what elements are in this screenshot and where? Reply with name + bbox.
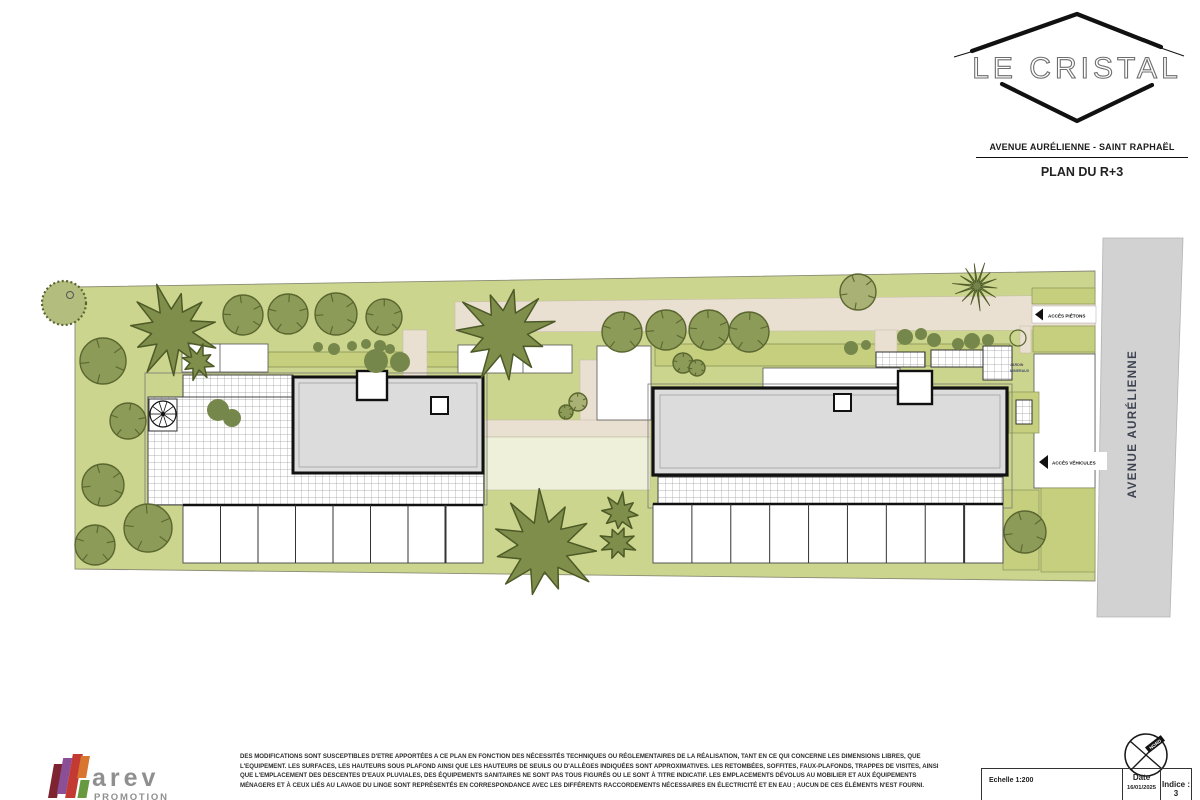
shrub: [861, 340, 871, 350]
tree: [729, 312, 769, 352]
tree: [366, 299, 402, 335]
disclaimer-line: DES MODIFICATIONS SONT SUSCEPTIBLES D'ET…: [240, 752, 938, 762]
tree: [124, 504, 172, 552]
balcony-row: [653, 504, 1003, 563]
roof-patio: [357, 371, 387, 400]
disclaimer: DES MODIFICATIONS SONT SUSCEPTIBLES D'ET…: [240, 752, 938, 791]
shrub: [361, 339, 371, 349]
tree: [315, 293, 357, 335]
roof-slab: [653, 388, 1007, 475]
shrub: [223, 409, 241, 427]
balcony-row: [183, 505, 483, 563]
path-between-buildings: [485, 420, 650, 437]
title-block: Echelle 1:200 Date 16/01/2025 Indice : 3: [981, 768, 1192, 800]
date-label: Date: [1123, 773, 1160, 782]
tree: [82, 464, 124, 506]
tree: [80, 338, 126, 384]
tree: [223, 295, 263, 335]
shrub: [313, 342, 323, 352]
access-vehicle-label: ACCÈS VÉHICULES: [1052, 459, 1096, 466]
shrub: [364, 349, 388, 373]
street-label: AVENUE AURÉLIENNE: [1126, 350, 1139, 498]
shrub: [964, 333, 980, 349]
roof-skylight: [834, 394, 851, 411]
index-cell: Indice : 3: [1161, 769, 1191, 800]
roof-skylight: [431, 397, 448, 414]
shrub: [915, 328, 927, 340]
roof-patio: [898, 371, 932, 404]
tree: [268, 294, 308, 334]
arev-logo-text: arev: [92, 764, 159, 793]
path-connector-3: [875, 330, 897, 352]
plan-sheet: LE CRISTAL AVENUE AURÉLIENNE - SAINT RAP…: [0, 0, 1200, 800]
road-avenue-aurelienne: AVENUE AURÉLIENNE: [1097, 238, 1183, 617]
access-pedestrian-label: ACCÈS PIÉTONS: [1048, 312, 1085, 319]
scale-cell: Echelle 1:200: [982, 769, 1123, 800]
shrub: [897, 329, 913, 345]
shrub: [347, 341, 357, 351]
tree: [646, 310, 686, 350]
shrub: [385, 344, 395, 354]
site-plan-drawing: AVENUE AURÉLIENNE: [0, 0, 1200, 800]
svg-text:JARDIN: JARDIN: [1010, 363, 1024, 367]
shrub: [328, 343, 340, 355]
disclaimer-line: QUE L'EMPLACEMENT DES DESCENTES D'EAUX P…: [240, 771, 938, 781]
tree-scalloped: [42, 281, 86, 325]
disclaimer-line: MÉNAGERS ET À CEUX LIÉS AU LAVAGE DU LIN…: [240, 781, 938, 791]
svg-text:MINERAUX: MINERAUX: [1010, 369, 1030, 373]
path-connector-2: [580, 360, 598, 422]
shrub: [844, 341, 858, 355]
tree: [689, 360, 705, 376]
access-pedestrian: ACCÈS PIÉTONS: [1032, 306, 1096, 323]
date-value: 16/01/2025: [1123, 785, 1160, 791]
roof-terrace-grid: [658, 477, 1003, 504]
arev-logo: arev PROMOTION: [30, 754, 220, 800]
courtyard-lawn: [485, 437, 650, 490]
spiral-stair: [150, 401, 176, 427]
access-vehicle: ACCÈS VÉHICULES: [1035, 452, 1107, 470]
tree: [840, 274, 876, 310]
tree: [110, 403, 146, 439]
shrub: [952, 338, 964, 350]
building-left: [145, 371, 487, 505]
date-cell: Date 16/01/2025: [1123, 769, 1161, 800]
tree: [559, 405, 573, 419]
shrub: [390, 352, 410, 372]
tree: [602, 312, 642, 352]
path-connector-1: [403, 330, 427, 377]
tree: [1004, 511, 1046, 553]
building-right: [648, 371, 1012, 508]
shrub: [982, 334, 994, 346]
arev-logo-bar: [77, 780, 89, 798]
shrub: [927, 333, 941, 347]
arev-logo-subtext: PROMOTION: [94, 792, 169, 800]
tree: [75, 525, 115, 565]
disclaimer-line: L'EQUIPEMENT. LES SURFACES, LES HAUTEURS…: [240, 762, 938, 772]
tree: [689, 310, 729, 350]
